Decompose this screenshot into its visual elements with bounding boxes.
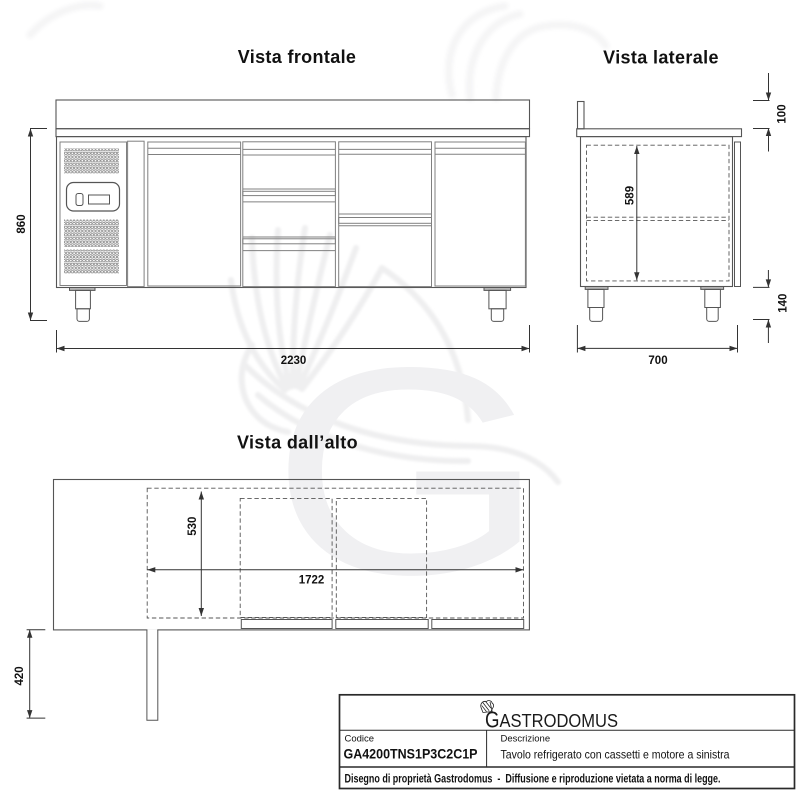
svg-text:140: 140 bbox=[778, 294, 790, 313]
svg-text:700: 700 bbox=[648, 355, 667, 367]
svg-text:Tavolo refrigerato con cassett: Tavolo refrigerato con cassetti e motore… bbox=[501, 748, 730, 762]
svg-text:1722: 1722 bbox=[299, 575, 325, 587]
svg-text:Descrizione: Descrizione bbox=[501, 734, 551, 745]
svg-text:Vista frontale: Vista frontale bbox=[238, 47, 357, 67]
svg-text:420: 420 bbox=[14, 666, 26, 685]
svg-text:G: G bbox=[271, 307, 546, 637]
svg-text:589: 589 bbox=[625, 186, 637, 205]
svg-text:Vista dall’alto: Vista dall’alto bbox=[237, 433, 358, 453]
svg-text:ASTRODOMUS: ASTRODOMUS bbox=[500, 711, 619, 731]
svg-text:Disegno di proprietà Gastrodom: Disegno di proprietà Gastrodomus - Diffu… bbox=[345, 772, 721, 786]
svg-text:100: 100 bbox=[777, 104, 789, 123]
svg-text:530: 530 bbox=[187, 517, 199, 536]
svg-text:Vista laterale: Vista laterale bbox=[603, 48, 719, 68]
svg-text:2230: 2230 bbox=[281, 355, 307, 367]
svg-text:GA4200TNS1P3C2C1P: GA4200TNS1P3C2C1P bbox=[344, 746, 478, 762]
svg-text:G: G bbox=[485, 707, 500, 733]
svg-text:Codice: Codice bbox=[345, 734, 375, 745]
svg-text:860: 860 bbox=[16, 214, 28, 233]
